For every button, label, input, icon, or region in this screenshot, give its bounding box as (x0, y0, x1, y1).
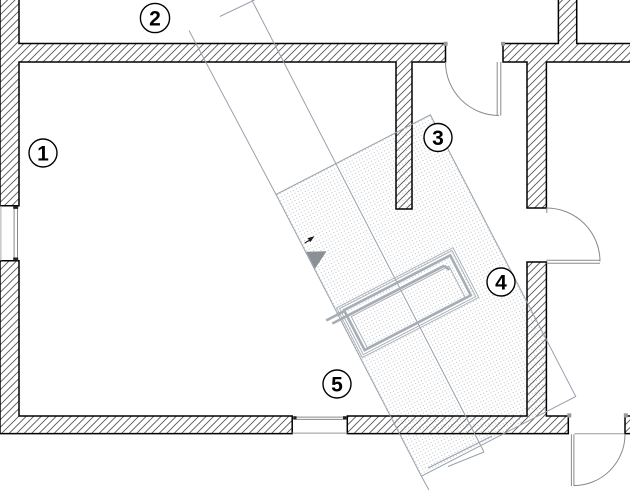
svg-text:2: 2 (149, 8, 161, 31)
svg-text:3: 3 (432, 127, 444, 150)
svg-text:5: 5 (331, 374, 343, 397)
svg-text:4: 4 (495, 272, 507, 295)
svg-text:1: 1 (37, 143, 49, 166)
